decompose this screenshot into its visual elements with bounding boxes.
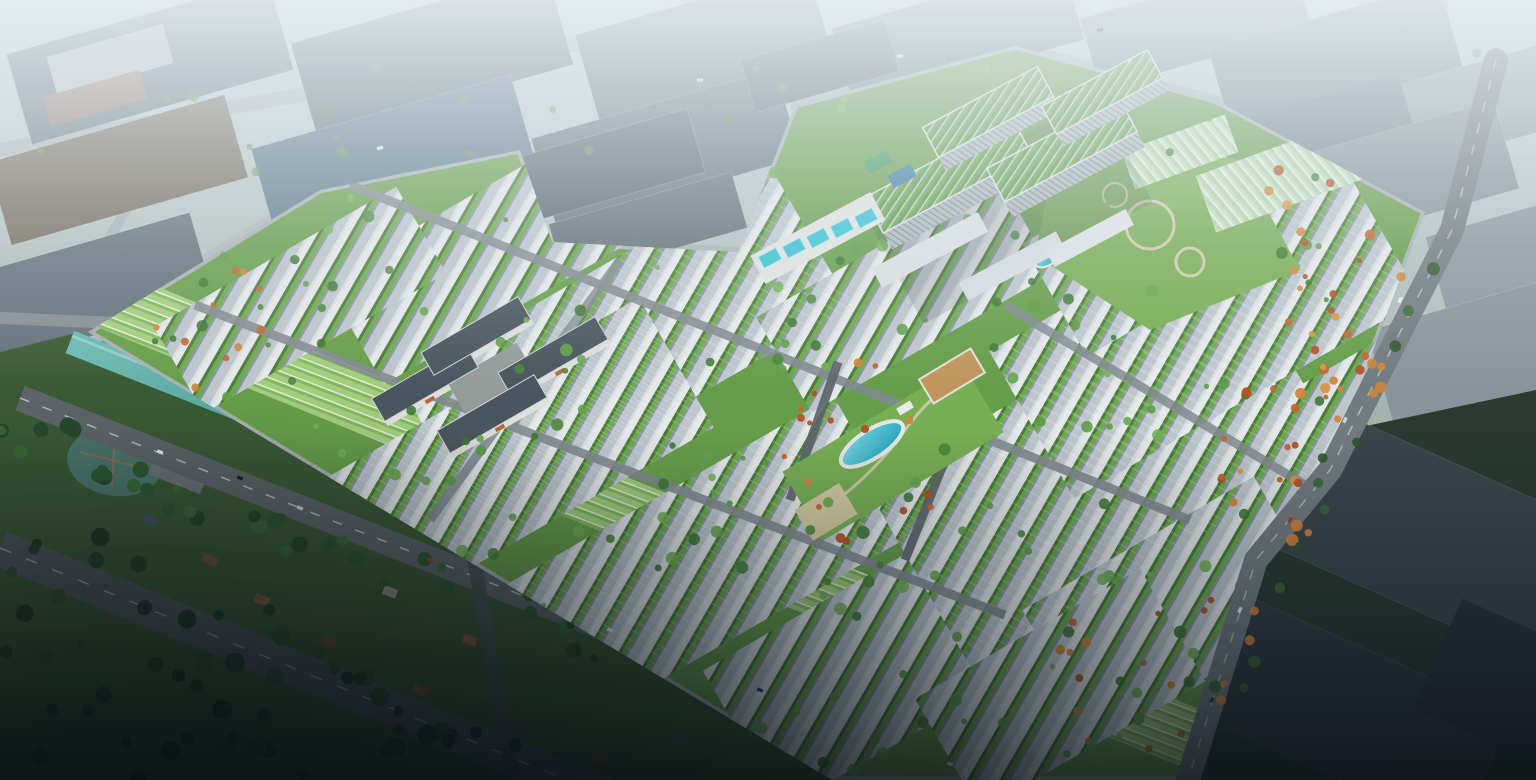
cool-tint-overlay xyxy=(0,0,1536,780)
screenshot-root xyxy=(0,0,1536,780)
aerial-masterplan-render xyxy=(0,0,1536,780)
overlay-layer xyxy=(0,0,1536,780)
